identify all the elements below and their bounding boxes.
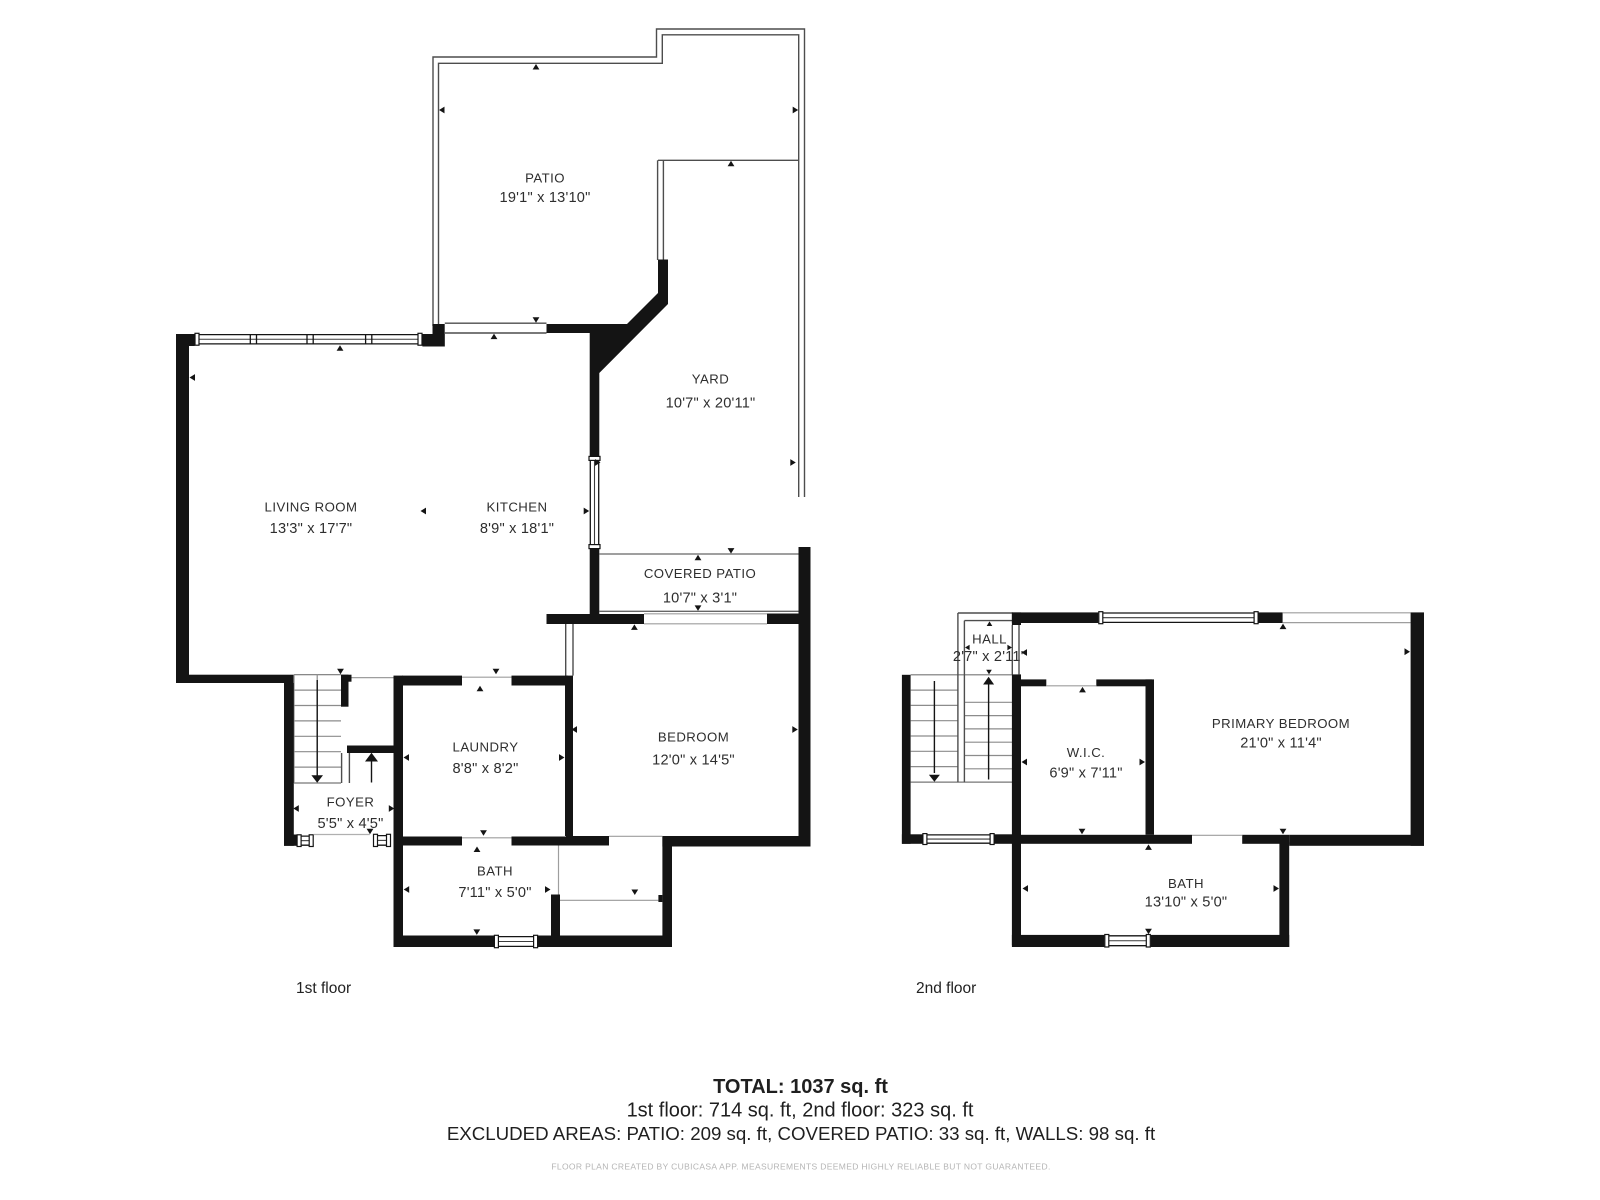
svg-text:1st floor: 714 sq. ft, 2nd flo: 1st floor: 714 sq. ft, 2nd floor: 323 sq… — [627, 1100, 974, 1122]
svg-text:21'0" x 11'4": 21'0" x 11'4" — [1240, 736, 1322, 752]
svg-text:KITCHEN: KITCHEN — [486, 499, 547, 514]
svg-text:TOTAL: 1037 sq. ft: TOTAL: 1037 sq. ft — [713, 1076, 888, 1098]
svg-text:EXCLUDED AREAS: PATIO: 209 sq.: EXCLUDED AREAS: PATIO: 209 sq. ft, COVER… — [447, 1123, 1156, 1144]
svg-text:BATH: BATH — [477, 863, 513, 878]
svg-text:7'11" x 5'0": 7'11" x 5'0" — [458, 885, 531, 901]
svg-text:10'7" x 3'1": 10'7" x 3'1" — [663, 591, 737, 607]
svg-text:W.I.C.: W.I.C. — [1067, 745, 1106, 760]
svg-text:YARD: YARD — [692, 371, 729, 386]
svg-text:2nd floor: 2nd floor — [916, 980, 976, 997]
svg-text:LAUNDRY: LAUNDRY — [453, 739, 519, 754]
svg-text:19'1" x 13'10": 19'1" x 13'10" — [500, 190, 591, 206]
svg-text:5'5" x 4'5": 5'5" x 4'5" — [317, 816, 383, 832]
svg-text:2'7" x 2'11": 2'7" x 2'11" — [953, 649, 1026, 665]
svg-text:13'3" x 17'7": 13'3" x 17'7" — [270, 521, 353, 537]
svg-text:PATIO: PATIO — [525, 170, 565, 185]
svg-text:12'0" x 14'5": 12'0" x 14'5" — [652, 753, 735, 769]
svg-text:COVERED PATIO: COVERED PATIO — [644, 566, 756, 581]
svg-text:13'10" x 5'0": 13'10" x 5'0" — [1145, 895, 1228, 911]
svg-text:8'8" x 8'2": 8'8" x 8'2" — [452, 761, 518, 777]
svg-text:BEDROOM: BEDROOM — [658, 729, 729, 744]
svg-text:6'9" x 7'11": 6'9" x 7'11" — [1049, 766, 1122, 782]
svg-text:LIVING ROOM: LIVING ROOM — [265, 499, 358, 514]
svg-text:FLOOR PLAN CREATED BY CUBICASA: FLOOR PLAN CREATED BY CUBICASA APP. MEAS… — [551, 1162, 1050, 1172]
svg-text:BATH: BATH — [1168, 876, 1204, 891]
svg-text:HALL: HALL — [972, 631, 1007, 646]
svg-text:8'9" x 18'1": 8'9" x 18'1" — [480, 521, 554, 537]
svg-text:1st floor: 1st floor — [296, 980, 351, 997]
svg-text:10'7" x 20'11": 10'7" x 20'11" — [666, 396, 756, 412]
svg-text:PRIMARY BEDROOM: PRIMARY BEDROOM — [1212, 716, 1350, 731]
svg-text:FOYER: FOYER — [327, 794, 375, 809]
